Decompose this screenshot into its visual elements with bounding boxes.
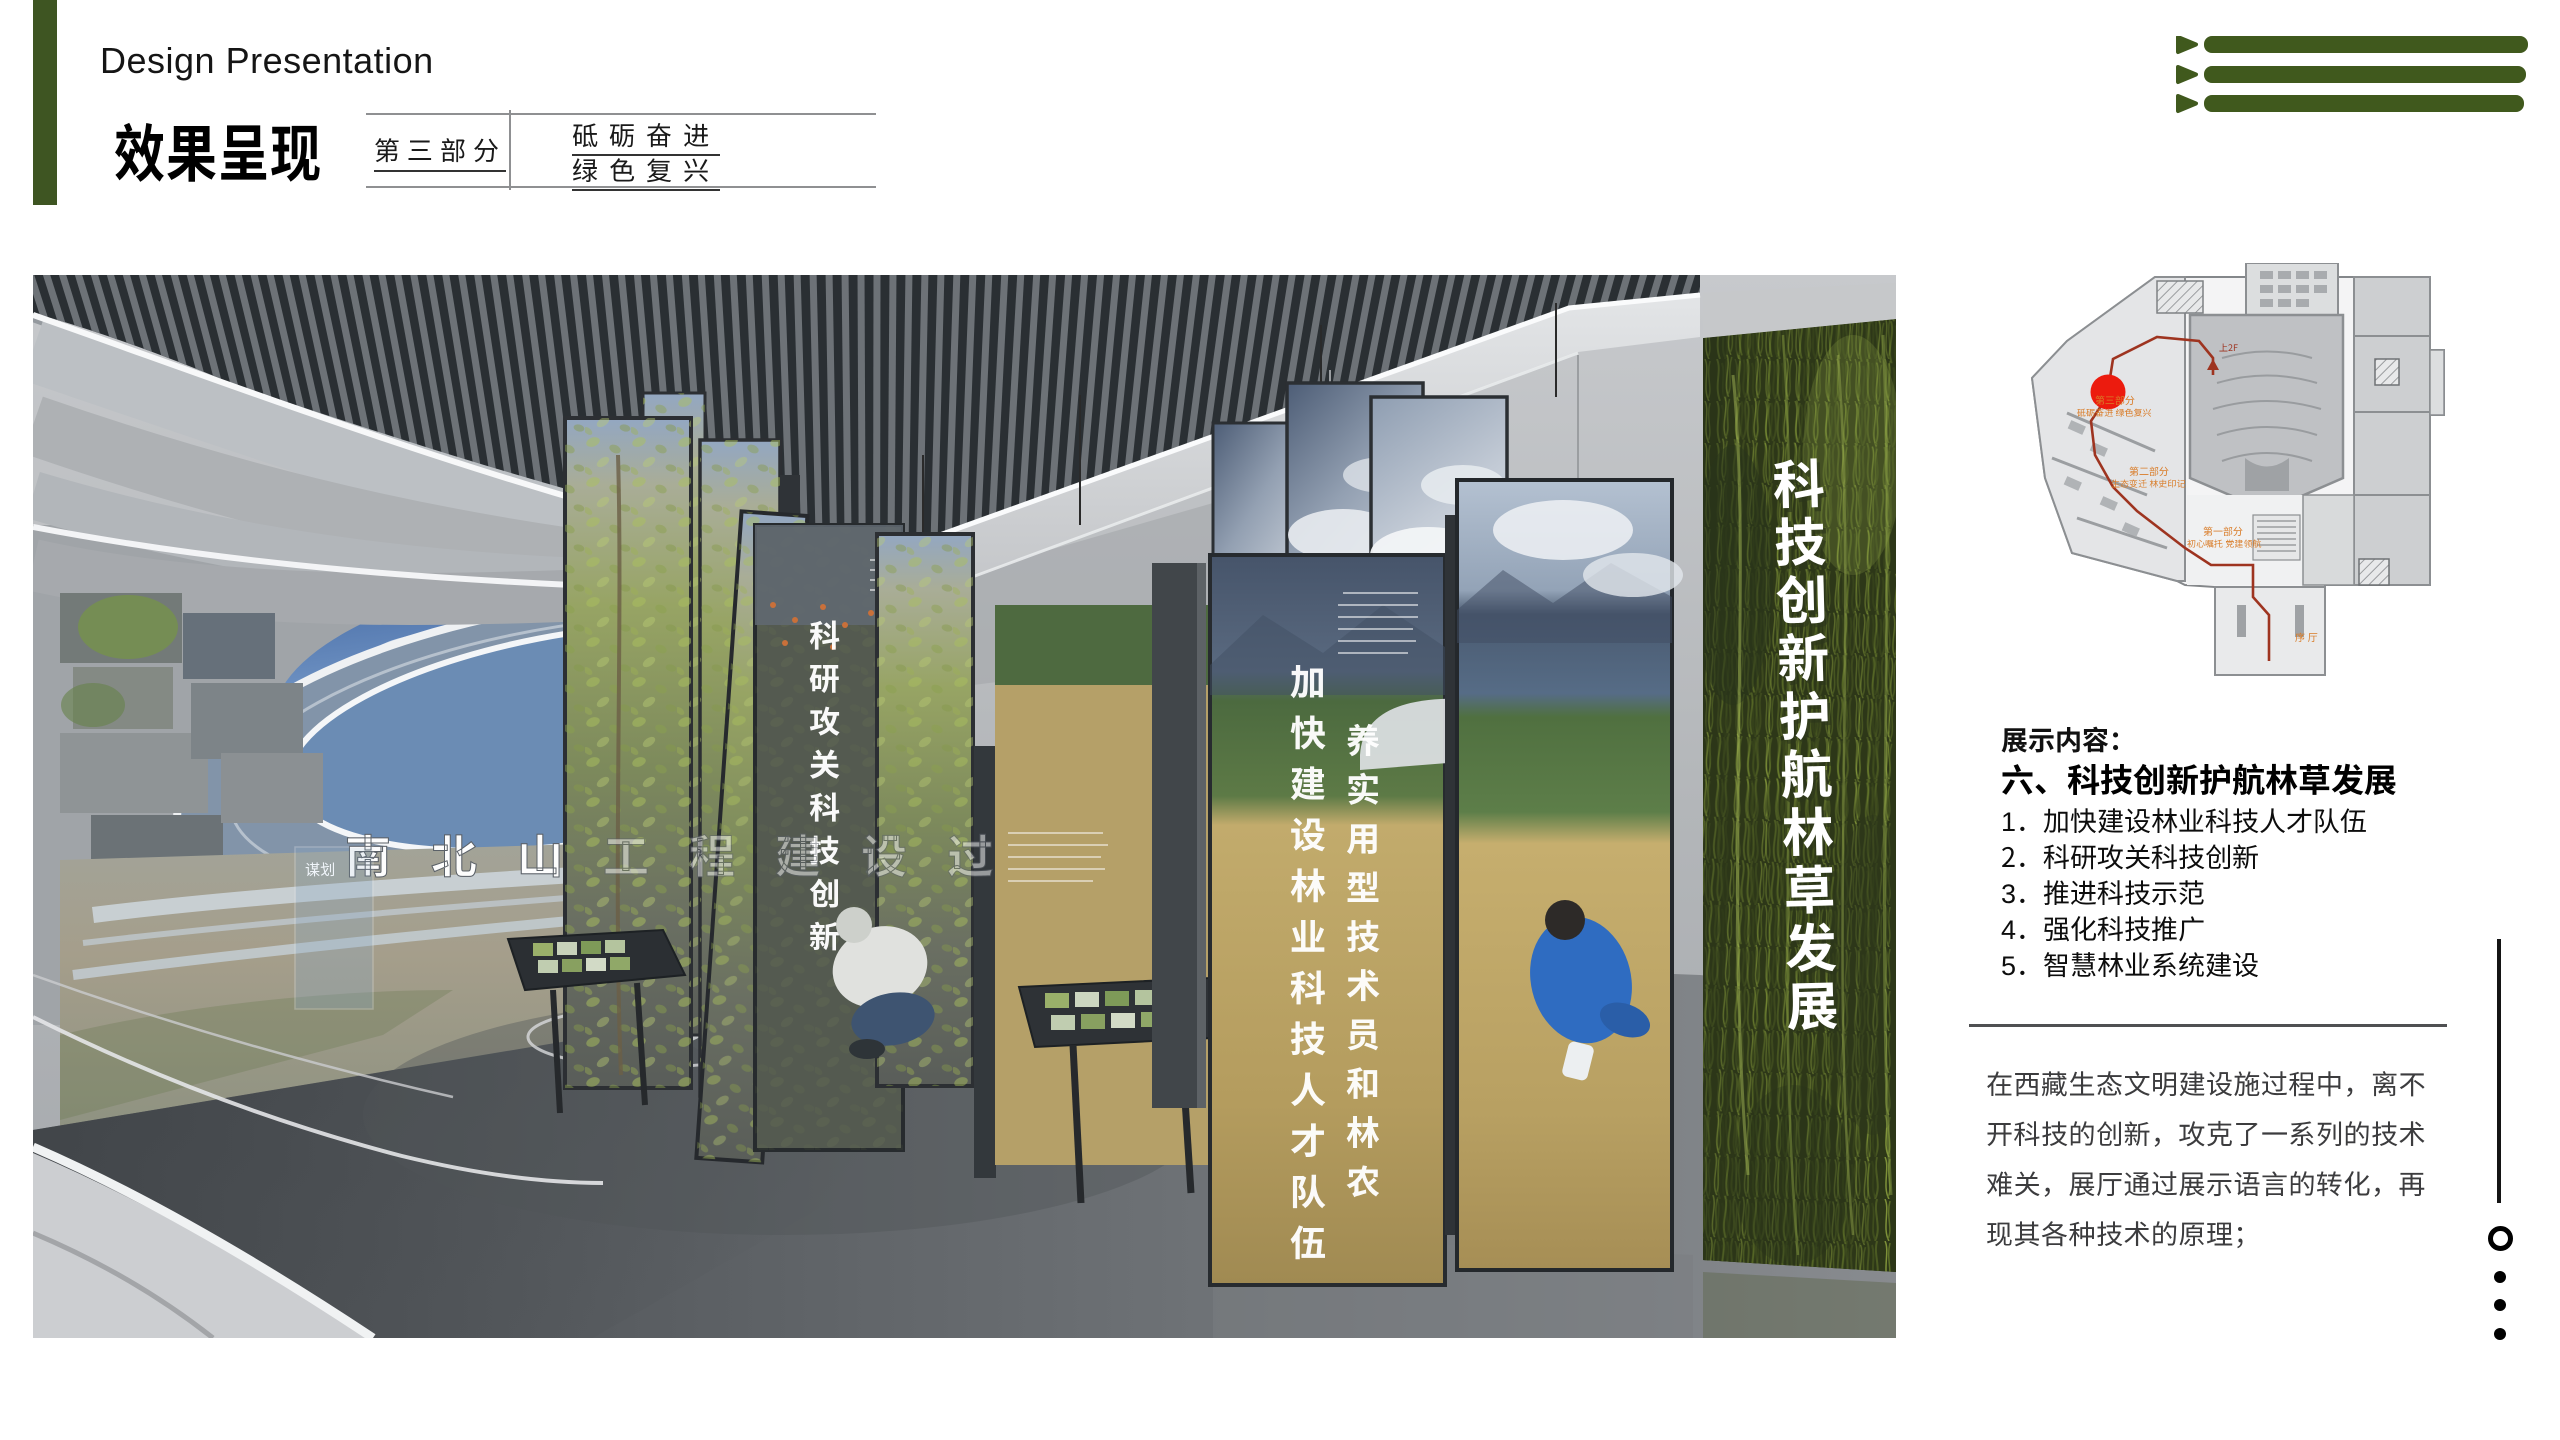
svg-text:科研攻关科技创新: 科研攻关科技创新 — [809, 611, 840, 957]
svg-text:加快建设林业科技人才队伍: 加快建设林业科技人才队伍 — [1290, 654, 1327, 1267]
svg-text:砥砺奋进 绿色复兴: 砥砺奋进 绿色复兴 — [2076, 406, 2152, 419]
svg-text:第二部分: 第二部分 — [2129, 463, 2169, 478]
svg-text:上2F: 上2F — [2219, 341, 2238, 354]
svg-text:第三部分: 第三部分 — [2095, 392, 2135, 407]
svg-text:生态变迁 林史印记: 生态变迁 林史印记 — [2111, 477, 2186, 490]
svg-text:养实用型技术员和林农: 养实用型技术员和林农 — [1346, 714, 1380, 1204]
svg-text:初心嘱托 党建领航: 初心嘱托 党建领航 — [2187, 537, 2263, 550]
svg-text:序 厅: 序 厅 — [2295, 629, 2318, 644]
svg-text:南北山工程建设过: 南北山工程建设过 — [345, 821, 1033, 887]
svg-text:谋划: 谋划 — [305, 859, 335, 880]
svg-text:第一部分: 第一部分 — [2203, 523, 2243, 538]
